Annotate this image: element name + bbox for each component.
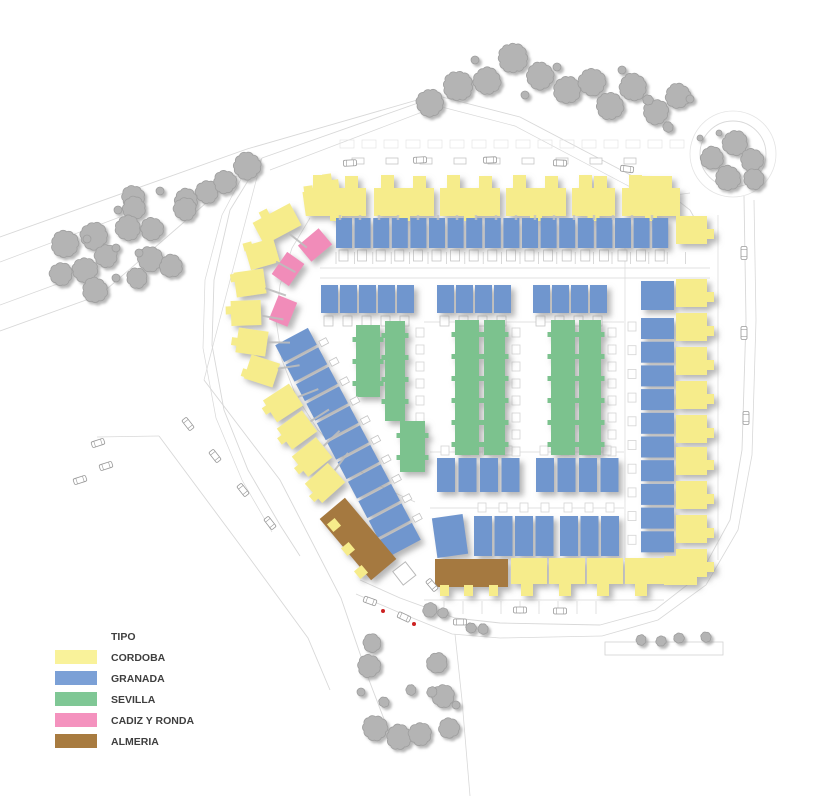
svg-text:CADIZ Y RONDA: CADIZ Y RONDA [111,715,194,727]
svg-text:TIPO: TIPO [111,631,136,643]
svg-text:CORDOBA: CORDOBA [111,652,166,664]
svg-text:GRANADA: GRANADA [111,673,165,685]
svg-text:SEVILLA: SEVILLA [111,694,156,706]
svg-text:ALMERIA: ALMERIA [111,736,159,748]
